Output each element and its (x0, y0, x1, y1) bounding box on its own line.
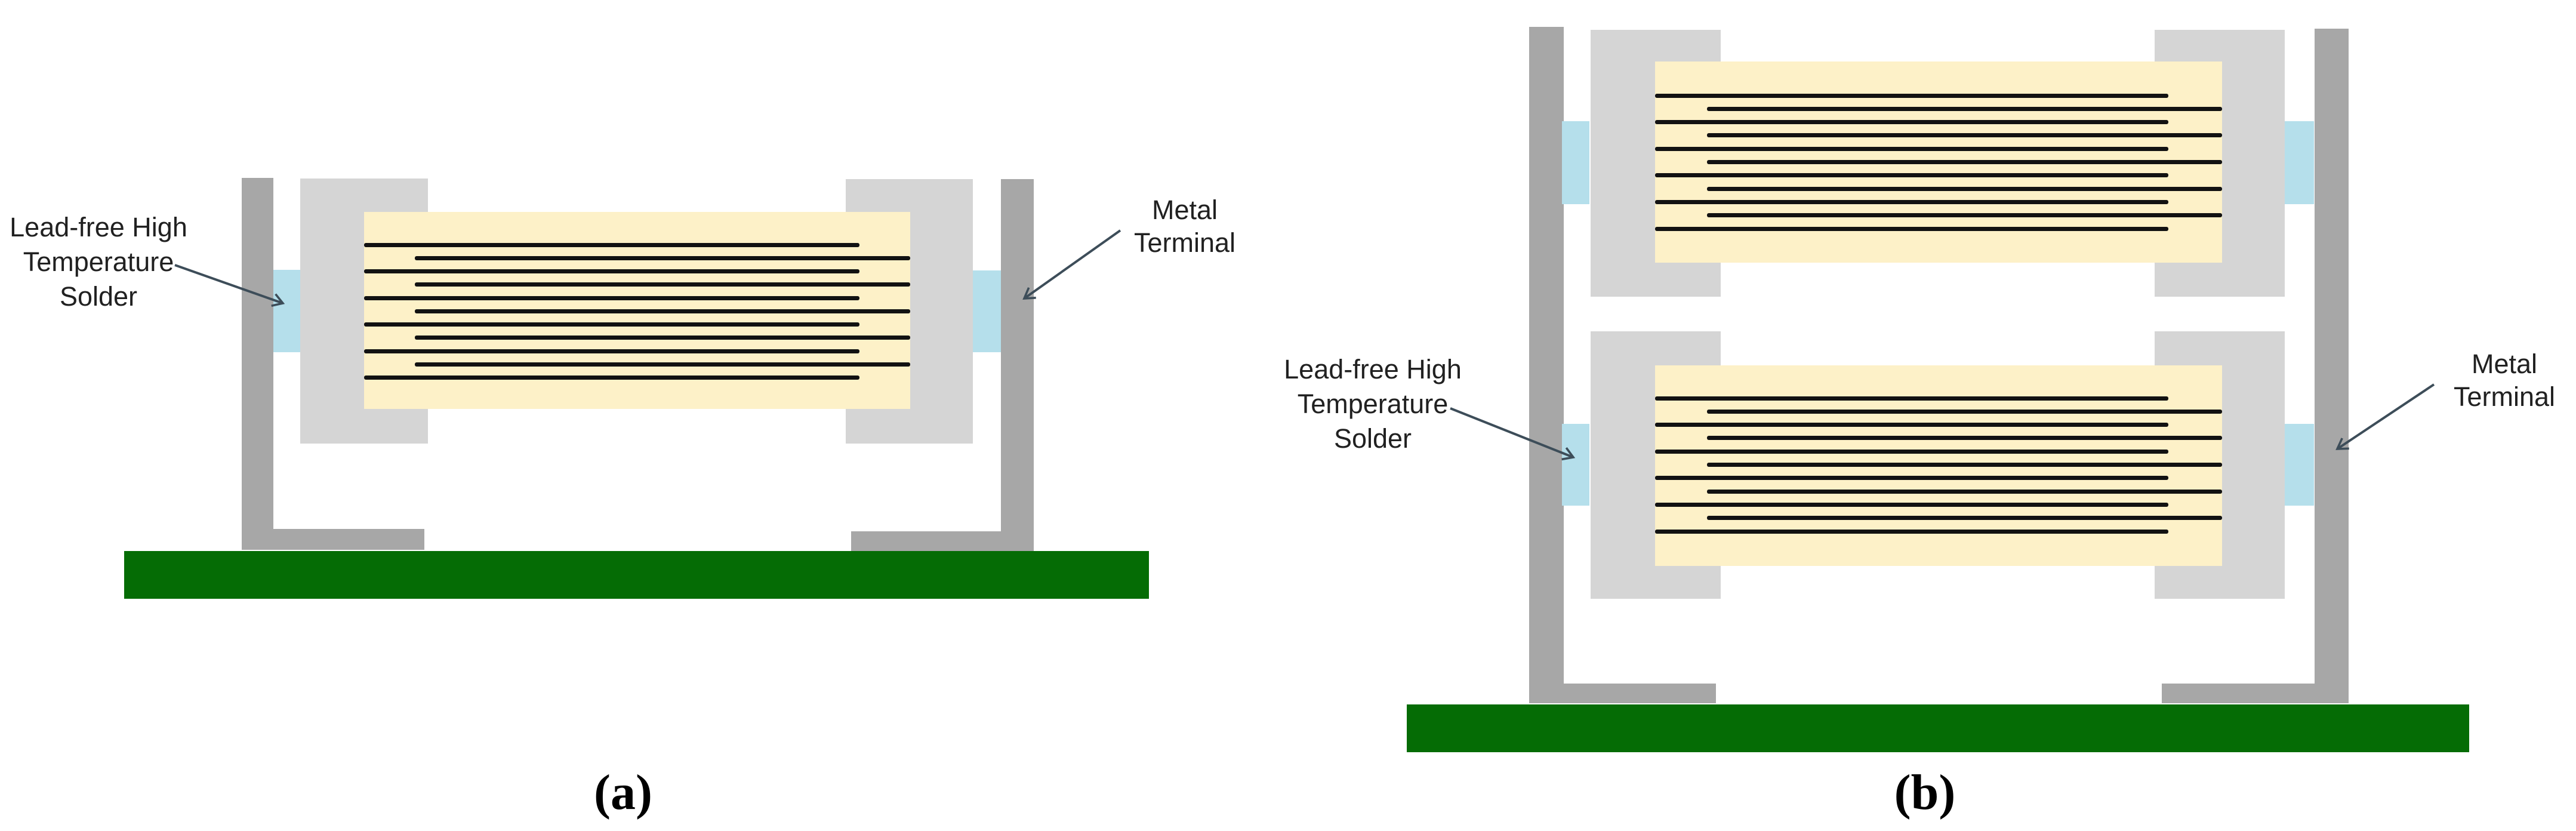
pcb-board (124, 551, 1149, 599)
panel-caption-a: (a) (563, 763, 683, 823)
solder-label-line2: Temperature (6, 245, 191, 279)
electrode-line (1655, 200, 2168, 204)
electrode-line (1655, 120, 2168, 124)
electrode-line (1707, 436, 2222, 440)
electrode-line (1655, 503, 2168, 507)
terminal-label-line1: Metal (2441, 347, 2568, 380)
electrode-line (1707, 133, 2222, 137)
solder-label-line3: Solder (6, 279, 191, 314)
terminal-label: Metal Terminal (1121, 193, 1248, 259)
figure-canvas: Lead-free High Temperature Solder Metal … (0, 0, 2576, 831)
metal-terminal-right (2315, 29, 2349, 703)
solder-label-line1: Lead-free High (1280, 352, 1465, 387)
electrode-line (1655, 423, 2168, 427)
leader-arrow-terminal-b (2337, 384, 2434, 449)
electrode-line (1707, 187, 2222, 191)
electrode-line (1707, 410, 2222, 414)
ceramic-body-upper (1655, 61, 2222, 263)
electrode-line (364, 243, 859, 247)
electrode-line (415, 362, 910, 367)
terminal-label: Metal Terminal (2441, 347, 2568, 413)
terminal-label-line2: Terminal (2441, 380, 2568, 413)
electrode-line (1655, 227, 2168, 231)
solder-joint-upper-right (2285, 121, 2314, 204)
electrode-line (415, 282, 910, 287)
solder-joint-right (973, 270, 1001, 352)
metal-terminal-left (242, 178, 273, 550)
solder-joint-left (273, 270, 300, 352)
electrode-line (1655, 530, 2168, 534)
terminal-label-line2: Terminal (1121, 226, 1248, 259)
ceramic-body (364, 212, 910, 409)
metal-terminal-left (1529, 27, 1564, 703)
solder-joint-lower-left (1562, 424, 1589, 506)
solder-label: Lead-free High Temperature Solder (1280, 352, 1465, 456)
electrode-line (364, 376, 859, 380)
electrode-line (1707, 160, 2222, 164)
solder-joint-upper-left (1562, 121, 1589, 204)
solder-label-line1: Lead-free High (6, 210, 191, 245)
solder-label: Lead-free High Temperature Solder (6, 210, 191, 314)
electrode-line (1655, 147, 2168, 151)
electrode-line (1707, 213, 2222, 217)
solder-label-line3: Solder (1280, 421, 1465, 456)
leader-arrow-terminal-a (1024, 230, 1120, 298)
terminal-foot-left (1529, 684, 1716, 703)
electrode-line (1655, 396, 2168, 401)
electrode-line (415, 336, 910, 340)
terminal-label-line1: Metal (1121, 193, 1248, 226)
panel-caption-b: (b) (1865, 763, 1985, 823)
terminal-foot-right (851, 531, 1034, 552)
electrode-line (415, 256, 910, 260)
electrode-line (1655, 94, 2168, 98)
electrode-line (364, 296, 859, 300)
electrode-line (1655, 476, 2168, 480)
electrode-line (364, 349, 859, 353)
electrode-line (364, 322, 859, 327)
terminal-foot-left (242, 529, 424, 550)
electrode-line (364, 269, 859, 273)
electrode-line (1707, 516, 2222, 520)
electrode-line (1707, 107, 2222, 111)
ceramic-body-lower (1655, 365, 2222, 566)
solder-label-line2: Temperature (1280, 387, 1465, 421)
terminal-foot-right (2162, 684, 2349, 703)
metal-terminal-right (1001, 179, 1034, 552)
electrode-line (1655, 450, 2168, 454)
electrode-line (415, 309, 910, 313)
electrode-line (1707, 463, 2222, 467)
pcb-board (1407, 704, 2469, 752)
electrode-line (1655, 173, 2168, 177)
solder-joint-lower-right (2285, 424, 2314, 506)
electrode-line (1707, 490, 2222, 494)
